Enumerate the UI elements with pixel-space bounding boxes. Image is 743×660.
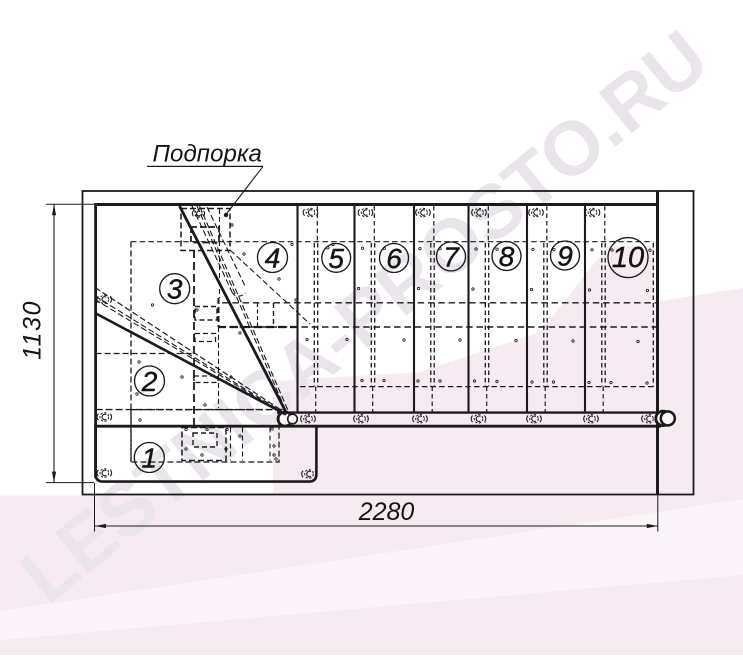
svg-text:2: 2: [141, 366, 158, 397]
svg-text:7: 7: [443, 242, 460, 273]
svg-text:5: 5: [328, 243, 344, 274]
svg-text:Подпорка: Подпорка: [153, 140, 262, 167]
svg-text:9: 9: [557, 241, 573, 272]
svg-text:1: 1: [142, 443, 158, 474]
svg-text:6: 6: [386, 243, 402, 274]
svg-text:2280: 2280: [358, 498, 415, 526]
svg-text:1130: 1130: [19, 300, 47, 360]
svg-text:3: 3: [167, 274, 183, 305]
svg-text:4: 4: [265, 243, 281, 274]
svg-text:8: 8: [499, 241, 515, 272]
svg-text:10: 10: [612, 242, 644, 274]
